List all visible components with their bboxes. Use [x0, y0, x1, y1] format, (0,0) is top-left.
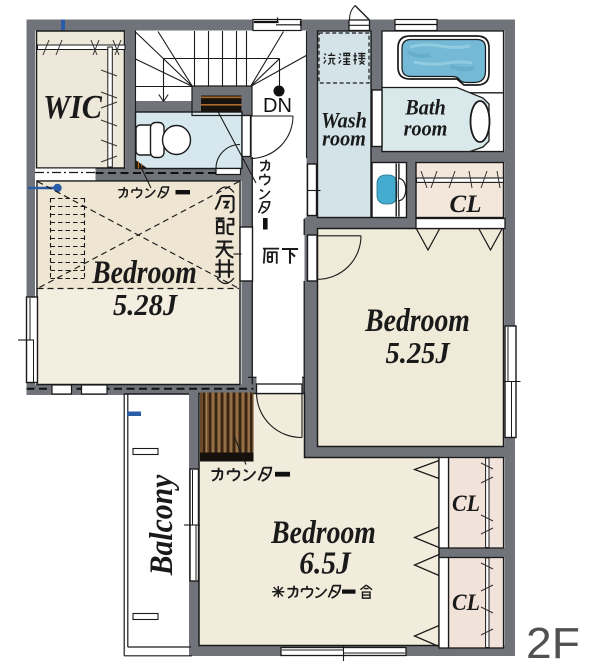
svg-text:Bedroom: Bedroom: [91, 254, 197, 291]
svg-text:5.25J: 5.25J: [385, 336, 450, 370]
svg-text:2F: 2F: [526, 618, 580, 668]
svg-text:Balcony: Balcony: [143, 474, 180, 577]
svg-text:DN: DN: [263, 95, 292, 117]
svg-text:Bedroom: Bedroom: [364, 302, 470, 339]
svg-text:6.5J: 6.5J: [299, 545, 352, 580]
svg-text:CL: CL: [452, 490, 480, 516]
svg-text:CL: CL: [450, 191, 482, 218]
svg-text:5.28J: 5.28J: [113, 288, 178, 322]
svg-text:CL: CL: [452, 589, 480, 615]
svg-text:room: room: [322, 126, 366, 151]
svg-text:WIC: WIC: [43, 87, 102, 125]
svg-text:room: room: [404, 116, 448, 141]
